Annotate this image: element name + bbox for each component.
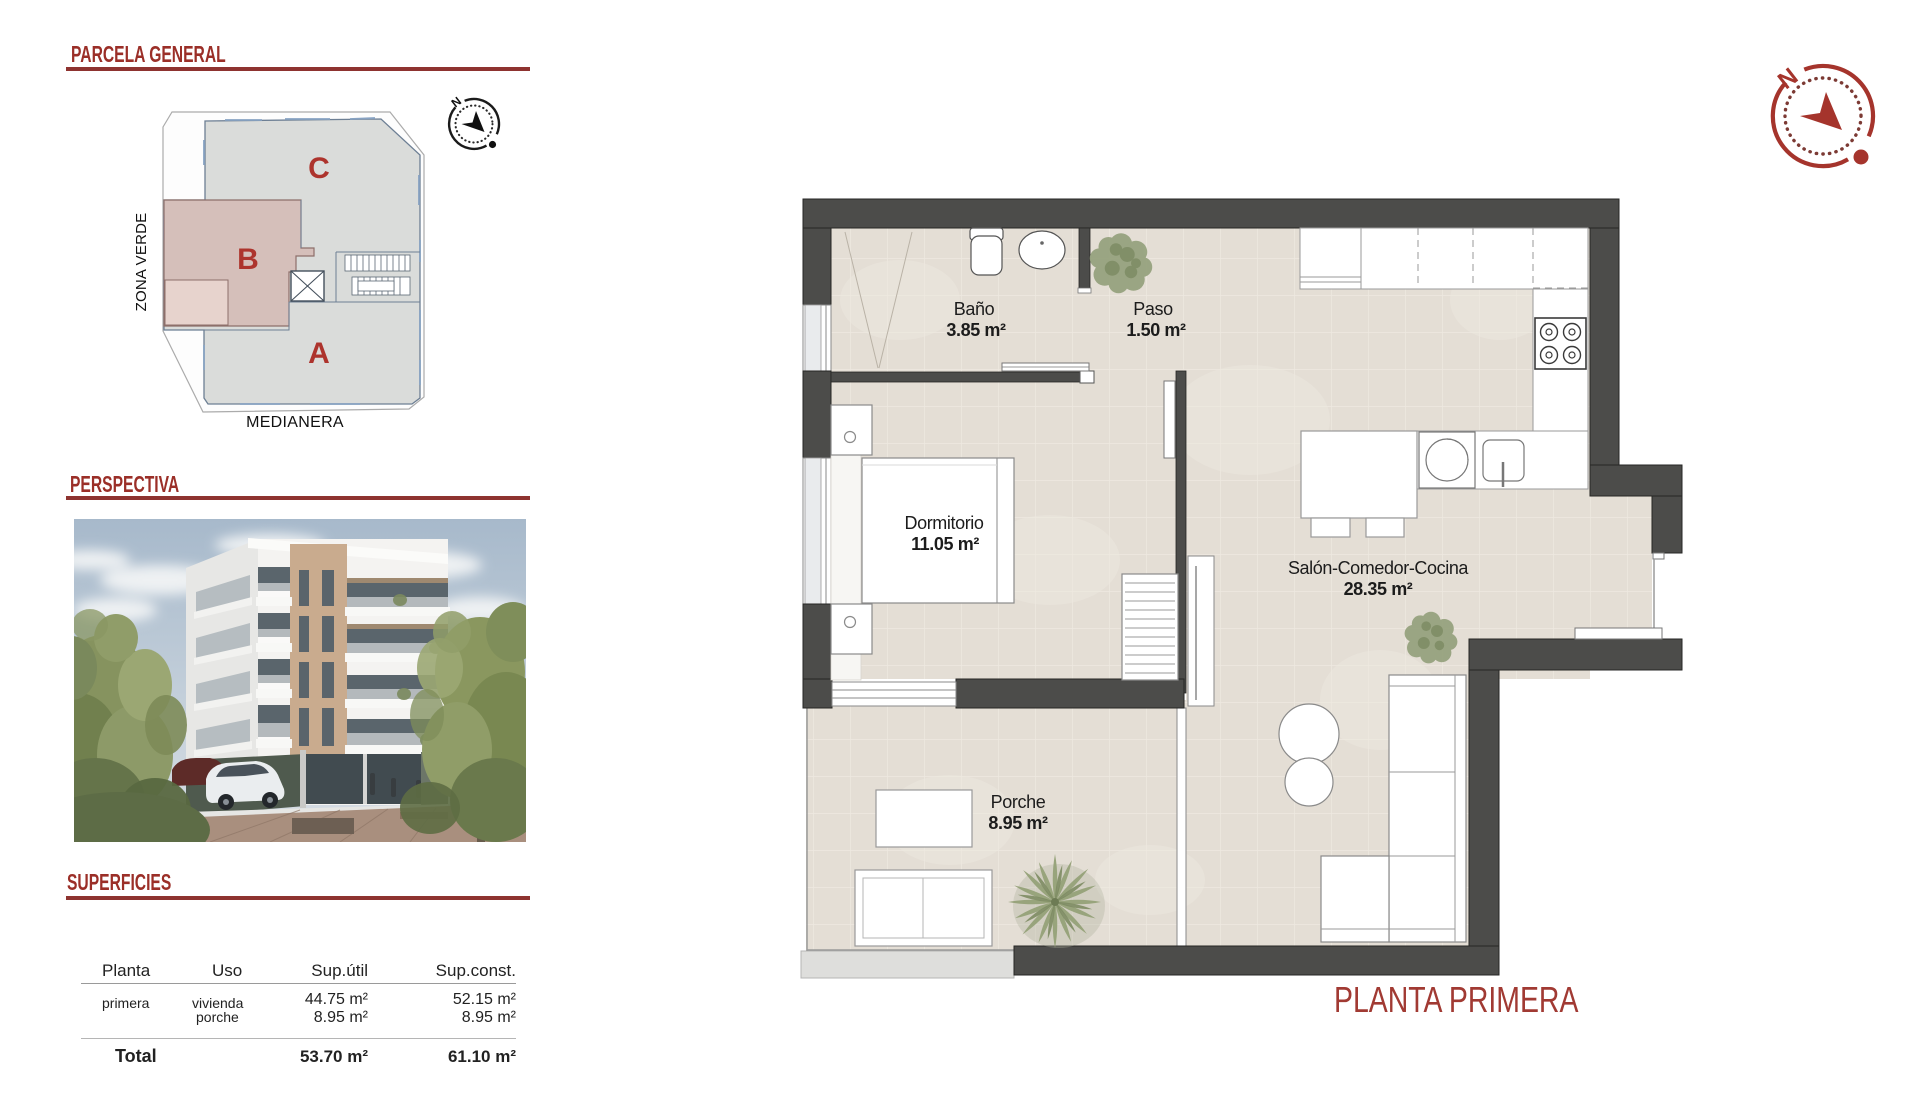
- svg-text:3.85 m²: 3.85 m²: [946, 320, 1006, 340]
- svg-text:8.95 m²: 8.95 m²: [988, 813, 1048, 833]
- svg-text:28.35 m²: 28.35 m²: [1344, 579, 1413, 599]
- svg-text:C: C: [308, 152, 330, 185]
- svg-text:Salón-Comedor-Cocina: Salón-Comedor-Cocina: [1288, 558, 1469, 578]
- svg-text:ZONA VERDE: ZONA VERDE: [133, 213, 150, 312]
- svg-text:Porche: Porche: [991, 792, 1046, 812]
- svg-text:N: N: [449, 94, 464, 110]
- svg-text:A: A: [308, 337, 330, 370]
- svg-text:11.05 m²: 11.05 m²: [911, 534, 979, 554]
- svg-text:Paso: Paso: [1133, 299, 1173, 319]
- svg-text:N: N: [1773, 63, 1803, 95]
- svg-text:MEDIANERA: MEDIANERA: [246, 414, 344, 431]
- svg-text:B: B: [237, 243, 259, 276]
- svg-text:Baño: Baño: [954, 299, 995, 319]
- svg-text:1.50 m²: 1.50 m²: [1126, 320, 1186, 340]
- svg-text:Dormitorio: Dormitorio: [904, 513, 983, 533]
